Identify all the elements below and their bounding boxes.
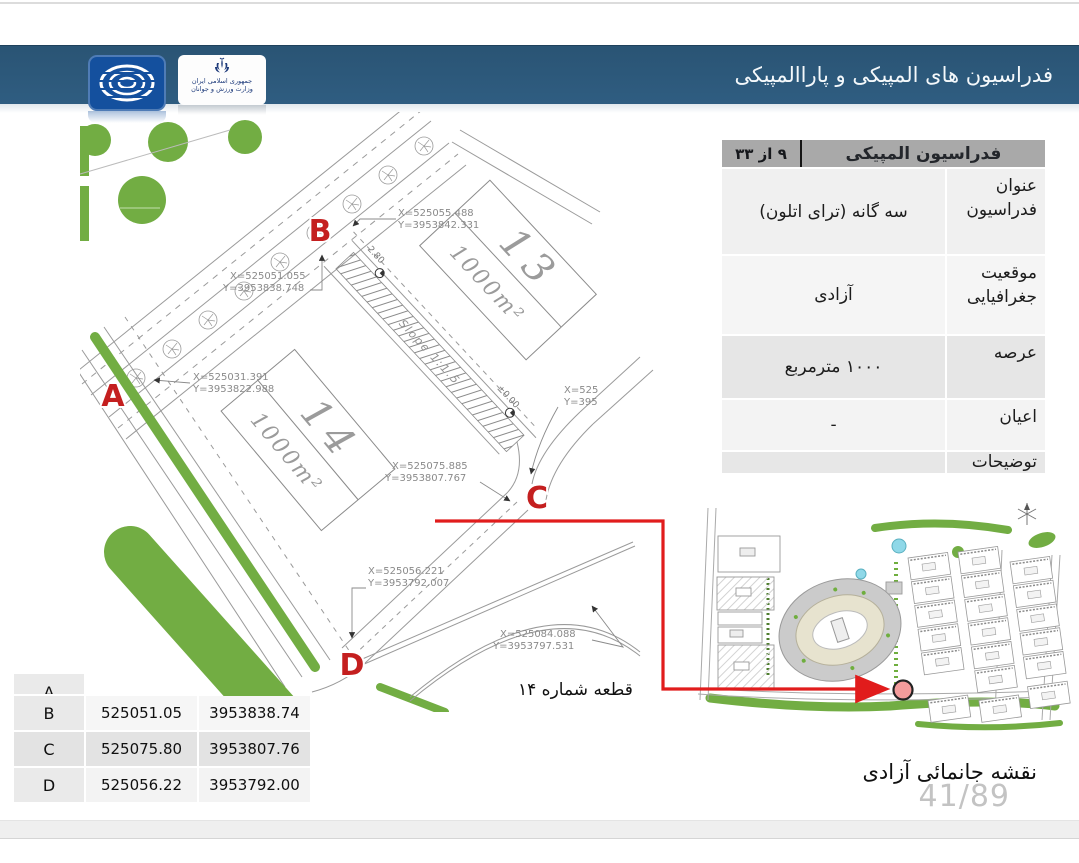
page-badge: ۹ از ۳۳: [722, 145, 800, 163]
point-cell: C: [14, 732, 84, 766]
info-table-header: ۹ از ۳۳ فدراسیون المپیکی: [722, 140, 1045, 167]
ann-right-x: X=525: [564, 385, 598, 396]
ann-d-x: X=525056.221: [368, 566, 444, 577]
ann-e-x: X=525084.088: [500, 629, 576, 640]
buildings-label: اعیان: [947, 400, 1045, 450]
ann-b-x: X=525051.055: [230, 271, 306, 282]
land-area-label: عرصه: [947, 336, 1045, 398]
ann-a-x: X=525031.391: [193, 372, 269, 383]
ann-d-y: Y=3953792.007: [367, 578, 449, 589]
scroll-track[interactable]: [0, 820, 1079, 839]
table-row: آزادی موقعیت جغرافیایی: [722, 256, 1045, 334]
target-plot-marker: [894, 681, 913, 700]
noc-rings-icon: [88, 55, 166, 111]
info-table-title: فدراسیون المپیکی: [802, 144, 1045, 164]
ann-e-y: Y=3953797.531: [492, 641, 574, 652]
table-row: - اعیان: [722, 400, 1045, 450]
azadi-site-minimap: [690, 500, 1079, 737]
pond-2: [856, 569, 866, 579]
point-cell: A: [14, 674, 84, 694]
federation-info-table: ۹ از ۳۳ فدراسیون المپیکی سه گانه (ترای ا…: [722, 140, 1045, 473]
buildings-value: -: [722, 400, 945, 450]
notes-value: [722, 452, 945, 473]
ann-a-y: Y=3953822.988: [192, 384, 274, 395]
table-row: C 525075.80 3953807.76: [14, 732, 310, 766]
iran-emblem-icon: [212, 57, 232, 77]
plot-number-callout: قطعه شماره ۱۴: [518, 680, 658, 700]
green-landscape-patches: [80, 120, 262, 241]
x-cell: [86, 674, 197, 694]
ann-c-y: Y=3953807.767: [384, 473, 466, 484]
location-value: آزادی: [722, 256, 945, 334]
point-b-label: B: [309, 214, 332, 249]
notes-label: توضیحات: [947, 452, 1045, 473]
top-divider: [0, 2, 1079, 4]
point-d-label: D: [340, 648, 365, 683]
slide-title: فدراسیون های المپیکی و پاراالمپیکی: [734, 46, 1053, 104]
point-a-label: A: [101, 379, 125, 414]
land-area-value: ۱۰۰۰ مترمربع: [722, 336, 945, 398]
ann-b-y: Y=3953838.748: [222, 283, 304, 294]
federation-title-value: سه گانه (ترای اتلون): [722, 169, 945, 254]
x-cell: 525056.22: [86, 768, 197, 802]
y-cell: 3953792.00: [199, 768, 310, 802]
table-row: ۱۰۰۰ مترمربع عرصه: [722, 336, 1045, 398]
ann-b-top-y: Y=3953842.331: [397, 220, 479, 231]
y-cell: 3953838.74: [199, 696, 310, 730]
ministry-logo: جمهوری اسلامی ایران وزارت ورزش و جوانان: [178, 55, 266, 105]
y-cell: [199, 674, 310, 694]
ministry-logo-line2: وزارت ورزش و جوانان: [191, 85, 253, 93]
ann-c-x: X=525075.885: [392, 461, 468, 472]
federation-title-label: عنوان فدراسیون: [947, 169, 1045, 254]
ministry-logo-line1: جمهوری اسلامی ایران: [192, 77, 252, 85]
table-row: سه گانه (ترای اتلون) عنوان فدراسیون: [722, 169, 1045, 254]
table-row: D 525056.22 3953792.00: [14, 768, 310, 802]
point-cell: D: [14, 768, 84, 802]
y-cell: 3953807.76: [199, 732, 310, 766]
pond-1: [892, 539, 906, 553]
roadside-trees: [127, 137, 433, 387]
north-compass-icon: [1018, 503, 1036, 525]
location-label: موقعیت جغرافیایی: [947, 256, 1045, 334]
page-number: 41/89: [919, 779, 1010, 814]
x-cell: 525075.80: [86, 732, 197, 766]
table-row: B 525051.05 3953838.74: [14, 696, 310, 730]
corner-coordinates-table: A B 525051.05 3953838.74 C 525075.80 395…: [14, 674, 310, 802]
presentation-slide: فدراسیون های المپیکی و پاراالمپیکی جمهور…: [0, 0, 1079, 863]
ann-right-y: Y=395: [563, 397, 598, 408]
ann-b-top-x: X=525055.488: [398, 208, 474, 219]
minimap-plot-grid: [908, 546, 1070, 722]
x-cell: 525051.05: [86, 696, 197, 730]
point-cell: B: [14, 696, 84, 730]
table-row: توضیحات: [722, 452, 1045, 473]
olympic-committee-logo: [88, 55, 166, 111]
table-row: A: [14, 674, 310, 694]
point-c-label: C: [526, 481, 548, 516]
slope-label: Slope 1:1.5: [396, 317, 463, 387]
cad-site-plan: 14 1000m² 13 1000m² Slope 1:1.5 2.80 ±0.…: [80, 112, 665, 712]
